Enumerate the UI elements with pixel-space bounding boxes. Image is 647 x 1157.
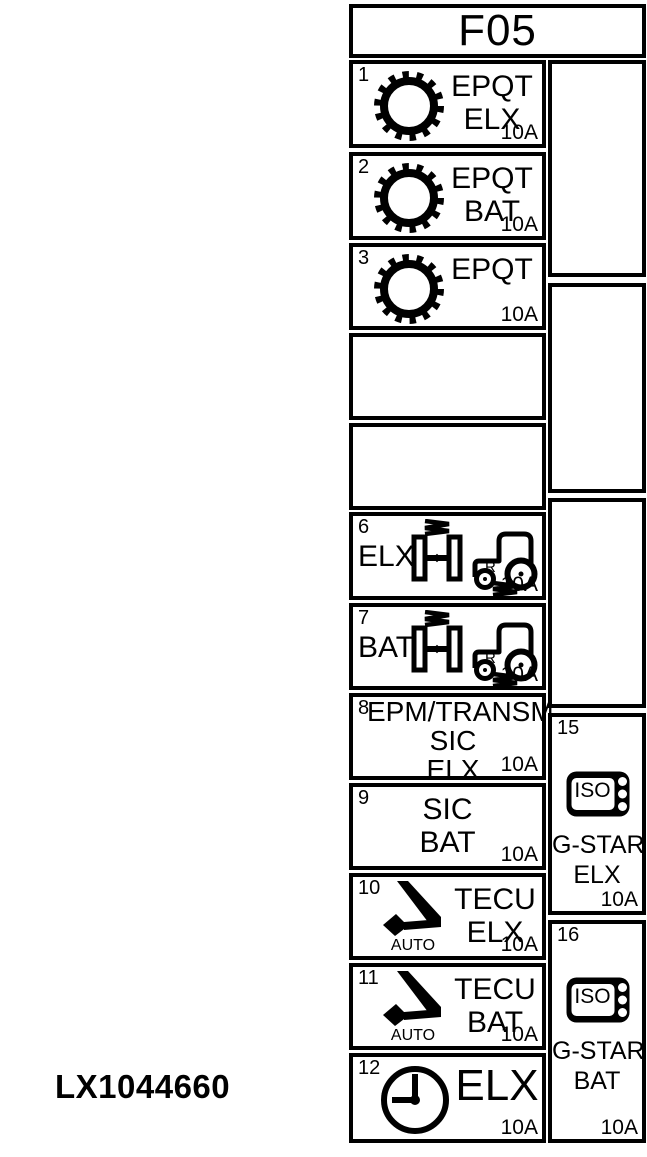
cell-labels: G-STAR ELX [552, 830, 642, 890]
right-segment-empty-2 [548, 283, 646, 493]
spring-icon [425, 521, 449, 534]
cell-number: 15 [557, 717, 579, 739]
amp-rating: 10A [501, 121, 538, 144]
fuse-cell-5-empty [349, 423, 546, 510]
panel-title: F05 [349, 4, 646, 58]
cell-number: 3 [358, 247, 369, 269]
amp-rating: 10A [601, 1116, 638, 1139]
clock-icon [379, 1064, 451, 1136]
amp-rating: 10A [501, 1023, 538, 1046]
cell-number: 16 [557, 924, 579, 946]
gear-icon [373, 70, 445, 142]
cell-number: 6 [358, 516, 369, 538]
iso-connector-icon: ISO [565, 976, 631, 1024]
amp-rating: 10A [501, 573, 538, 596]
iso-label: ISO [571, 985, 614, 1009]
fuse-cell-7: 7 BAT R 10A [349, 603, 546, 690]
cell-line1: SIC [353, 793, 542, 826]
amp-rating: 10A [501, 663, 538, 686]
axle-letter: R [485, 650, 496, 667]
shift-lever-auto-icon: AUTO [377, 881, 449, 955]
cell-number: 7 [358, 607, 369, 629]
fuse-cell-6: 6 ELX R 10A [349, 512, 546, 600]
right-segment-empty-1 [548, 60, 646, 277]
fuse-cell-11: 11 AUTO TECU BAT 10A [349, 963, 546, 1050]
cell-line1: ELX [453, 1061, 541, 1111]
cell-line1: EPQT [445, 253, 539, 286]
fuse-cell-9: 9 SIC BAT 10A [349, 783, 546, 870]
cell-number: 11 [358, 967, 379, 989]
cell-labels: G-STAR BAT [552, 1036, 642, 1096]
cell-labels: EPQT [445, 253, 539, 286]
cell-number: 1 [358, 64, 369, 86]
iso-label: ISO [571, 779, 614, 803]
fuse-cell-12: 12 ELX 10A [349, 1053, 546, 1143]
shift-lever-icon [380, 971, 446, 1027]
fuse-cell-3: 3 EPQT 10A [349, 243, 546, 330]
cell-line1: TECU [449, 883, 541, 916]
amp-rating: 10A [501, 303, 538, 326]
auto-label: AUTO [377, 937, 449, 955]
fuse-cell-2: 2 EPQT BAT 10A [349, 152, 546, 240]
amp-rating: 10A [501, 933, 538, 956]
amp-rating: 10A [501, 843, 538, 866]
cell-line2: BAT [552, 1066, 642, 1096]
cell-line1: G-STAR [552, 1036, 642, 1066]
cell-line2: ELX [552, 860, 642, 890]
shift-lever-icon [380, 881, 446, 937]
fuse-cell-1: 1 EPQT ELX 10A [349, 60, 546, 148]
iso-connector-icon: ISO [565, 770, 631, 818]
cell-prefix: ELX [358, 540, 415, 574]
panel-title-label: F05 [458, 6, 537, 56]
spring-icon [425, 612, 449, 625]
amp-rating: 10A [601, 888, 638, 911]
fuse-cell-16: 16 ISO G-STAR BAT 10A [548, 920, 646, 1143]
fuse-cell-8: 8 EPM/TRANSM SIC ELX 10A [349, 693, 546, 780]
axle-letter: R [485, 559, 496, 576]
right-segment-empty-3 [548, 498, 646, 708]
cell-line1: TECU [449, 973, 541, 1006]
amp-rating: 10A [501, 753, 538, 776]
fuse-cell-4-empty [349, 333, 546, 420]
amp-rating: 10A [501, 1116, 538, 1139]
cell-number: 12 [358, 1057, 380, 1079]
fuse-cell-15: 15 ISO G-STAR ELX 10A [548, 713, 646, 915]
cell-labels: ELX [453, 1061, 541, 1111]
cell-prefix: BAT [358, 631, 414, 665]
cell-line1: EPQT [445, 70, 539, 103]
cell-line1: EPQT [445, 162, 539, 195]
fuse-panel-diagram: F05 1 EPQT ELX 10A 2 EPQT BAT 10A [0, 0, 647, 1157]
gear-icon [373, 162, 445, 234]
cell-line1: EPM/TRANSM [367, 697, 539, 726]
fuse-cell-10: 10 AUTO TECU ELX 10A [349, 873, 546, 960]
gear-icon [373, 253, 445, 325]
cell-number: 2 [358, 156, 369, 178]
amp-rating: 10A [501, 213, 538, 236]
shift-lever-auto-icon: AUTO [377, 971, 449, 1045]
cell-line2: SIC [367, 726, 539, 755]
figure-id: LX1044660 [55, 1068, 230, 1106]
auto-label: AUTO [377, 1027, 449, 1045]
cell-line1: G-STAR [552, 830, 642, 860]
